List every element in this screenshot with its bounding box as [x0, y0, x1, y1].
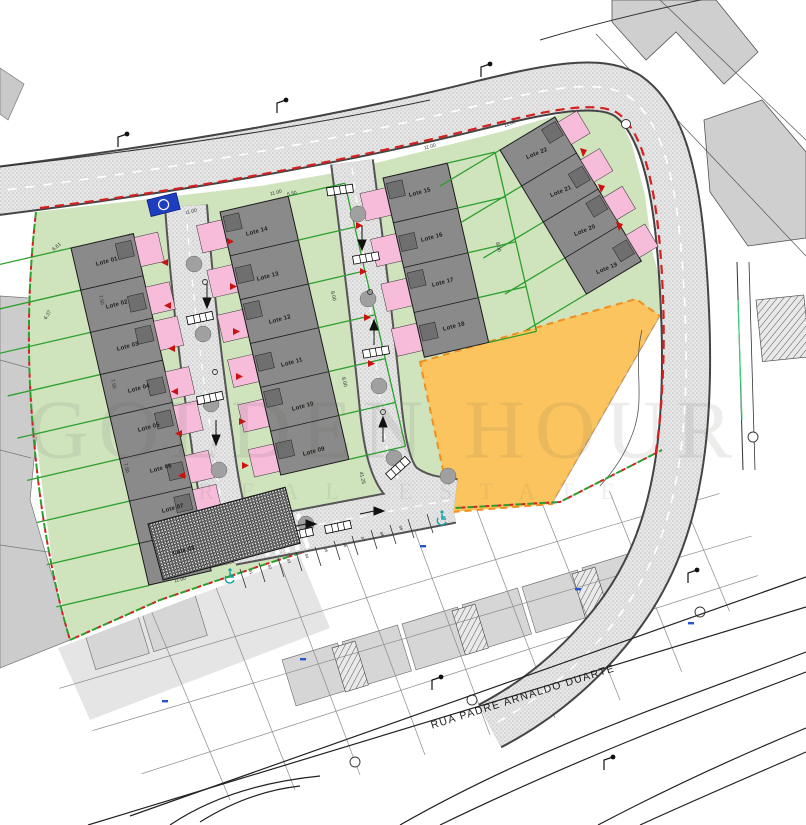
right-edge-details — [737, 262, 806, 470]
plan-drawing — [0, 0, 806, 825]
site-plan: Lote 01 Lote 02 Lote 03 Lote 04 Lote 05 … — [0, 0, 806, 825]
